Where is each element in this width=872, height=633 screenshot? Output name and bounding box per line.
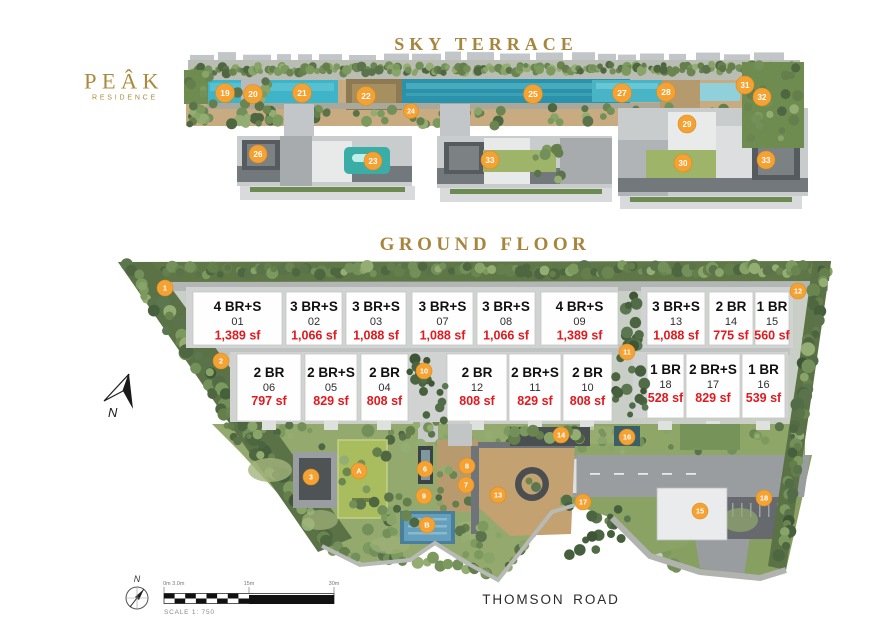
svg-text:808 sf: 808 sf — [570, 394, 606, 408]
svg-text:A: A — [356, 467, 362, 476]
svg-text:17: 17 — [579, 498, 587, 507]
svg-text:RESIDENCE: RESIDENCE — [92, 95, 158, 102]
svg-text:18: 18 — [659, 379, 671, 391]
svg-text:1,088 sf: 1,088 sf — [653, 329, 700, 343]
svg-text:829 sf: 829 sf — [313, 394, 349, 408]
svg-text:539 sf: 539 sf — [746, 391, 782, 405]
svg-text:13: 13 — [494, 491, 502, 500]
svg-text:02: 02 — [308, 316, 320, 328]
svg-text:1,088 sf: 1,088 sf — [420, 329, 467, 343]
svg-text:09: 09 — [573, 316, 585, 328]
svg-text:N: N — [108, 405, 118, 420]
svg-text:23: 23 — [369, 157, 378, 166]
svg-text:PEÂK: PEÂK — [84, 69, 164, 94]
svg-text:1,066 sf: 1,066 sf — [291, 329, 338, 343]
svg-text:6: 6 — [423, 465, 427, 474]
svg-text:1 BR: 1 BR — [757, 299, 788, 314]
svg-text:32: 32 — [758, 93, 767, 102]
svg-text:3 BR+S: 3 BR+S — [290, 299, 338, 314]
svg-text:4 BR+S: 4 BR+S — [556, 299, 604, 314]
svg-text:13: 13 — [670, 316, 682, 328]
svg-text:11: 11 — [623, 348, 631, 357]
svg-text:21: 21 — [297, 88, 307, 98]
svg-text:GROUND FLOOR: GROUND FLOOR — [380, 234, 591, 255]
svg-text:18: 18 — [760, 494, 768, 503]
svg-text:26: 26 — [254, 150, 263, 159]
svg-text:16: 16 — [757, 379, 769, 391]
svg-text:808 sf: 808 sf — [367, 394, 403, 408]
svg-text:8: 8 — [465, 462, 469, 471]
svg-text:1 BR: 1 BR — [650, 362, 681, 377]
svg-text:06: 06 — [263, 382, 275, 394]
svg-text:808 sf: 808 sf — [459, 394, 495, 408]
svg-text:08: 08 — [500, 316, 512, 328]
svg-text:2 BR+S: 2 BR+S — [689, 362, 737, 377]
svg-text:33: 33 — [762, 156, 771, 165]
svg-text:15: 15 — [696, 507, 704, 516]
svg-text:12: 12 — [794, 287, 802, 296]
svg-text:3 BR+S: 3 BR+S — [652, 299, 700, 314]
svg-text:30: 30 — [679, 159, 688, 168]
svg-text:17: 17 — [707, 379, 719, 391]
svg-text:15m: 15m — [244, 581, 255, 587]
svg-text:24: 24 — [407, 109, 415, 116]
svg-text:15: 15 — [766, 316, 778, 328]
svg-text:7: 7 — [464, 481, 468, 490]
svg-text:12: 12 — [471, 382, 483, 394]
svg-text:14: 14 — [725, 316, 737, 328]
svg-text:04: 04 — [378, 382, 390, 394]
svg-text:797 sf: 797 sf — [251, 394, 287, 408]
svg-text:0m 3.0m: 0m 3.0m — [163, 581, 185, 587]
svg-text:THOMSON ROAD: THOMSON ROAD — [482, 592, 620, 607]
svg-text:3 BR+S: 3 BR+S — [482, 299, 530, 314]
svg-text:2 BR: 2 BR — [462, 365, 493, 380]
svg-text:07: 07 — [436, 316, 448, 328]
svg-text:1,066 sf: 1,066 sf — [483, 329, 530, 343]
svg-text:1,088 sf: 1,088 sf — [353, 329, 400, 343]
svg-text:11: 11 — [529, 382, 540, 394]
svg-text:10: 10 — [420, 367, 428, 376]
svg-text:2 BR+S: 2 BR+S — [511, 365, 559, 380]
svg-text:829 sf: 829 sf — [517, 394, 553, 408]
svg-text:20: 20 — [248, 89, 258, 99]
svg-text:2 BR+S: 2 BR+S — [307, 365, 355, 380]
svg-text:29: 29 — [683, 120, 692, 129]
svg-text:528 sf: 528 sf — [648, 391, 684, 405]
svg-text:1: 1 — [163, 284, 167, 293]
svg-text:03: 03 — [370, 316, 382, 328]
svg-text:N: N — [134, 574, 141, 584]
svg-text:14: 14 — [557, 431, 566, 440]
svg-text:05: 05 — [325, 382, 337, 394]
svg-text:3 BR+S: 3 BR+S — [419, 299, 467, 314]
svg-text:25: 25 — [528, 89, 538, 99]
svg-text:30m: 30m — [329, 581, 340, 587]
svg-text:2: 2 — [219, 357, 223, 366]
svg-text:1 BR: 1 BR — [748, 362, 779, 377]
svg-text:2 BR: 2 BR — [572, 365, 603, 380]
svg-text:1,389 sf: 1,389 sf — [557, 329, 604, 343]
svg-text:31: 31 — [741, 81, 750, 90]
svg-text:SKY TERRACE: SKY TERRACE — [394, 34, 578, 54]
svg-text:10: 10 — [581, 382, 593, 394]
svg-text:28: 28 — [661, 87, 671, 97]
svg-text:9: 9 — [422, 492, 426, 501]
svg-text:3 BR+S: 3 BR+S — [352, 299, 400, 314]
svg-text:B: B — [424, 521, 430, 530]
svg-text:560 sf: 560 sf — [754, 329, 790, 343]
svg-text:22: 22 — [361, 91, 371, 101]
svg-text:3: 3 — [309, 473, 313, 482]
svg-text:27: 27 — [617, 88, 627, 98]
svg-text:33: 33 — [486, 156, 495, 165]
svg-text:01: 01 — [231, 316, 243, 328]
svg-text:2 BR: 2 BR — [254, 365, 285, 380]
svg-text:19: 19 — [220, 88, 230, 98]
svg-text:4 BR+S: 4 BR+S — [214, 299, 262, 314]
svg-text:829 sf: 829 sf — [695, 391, 731, 405]
svg-text:16: 16 — [623, 433, 631, 442]
svg-text:2 BR: 2 BR — [369, 365, 400, 380]
svg-text:775 sf: 775 sf — [713, 329, 749, 343]
svg-text:1,389 sf: 1,389 sf — [215, 329, 262, 343]
svg-text:SCALE 1: 750: SCALE 1: 750 — [164, 609, 215, 616]
svg-text:2 BR: 2 BR — [716, 299, 747, 314]
